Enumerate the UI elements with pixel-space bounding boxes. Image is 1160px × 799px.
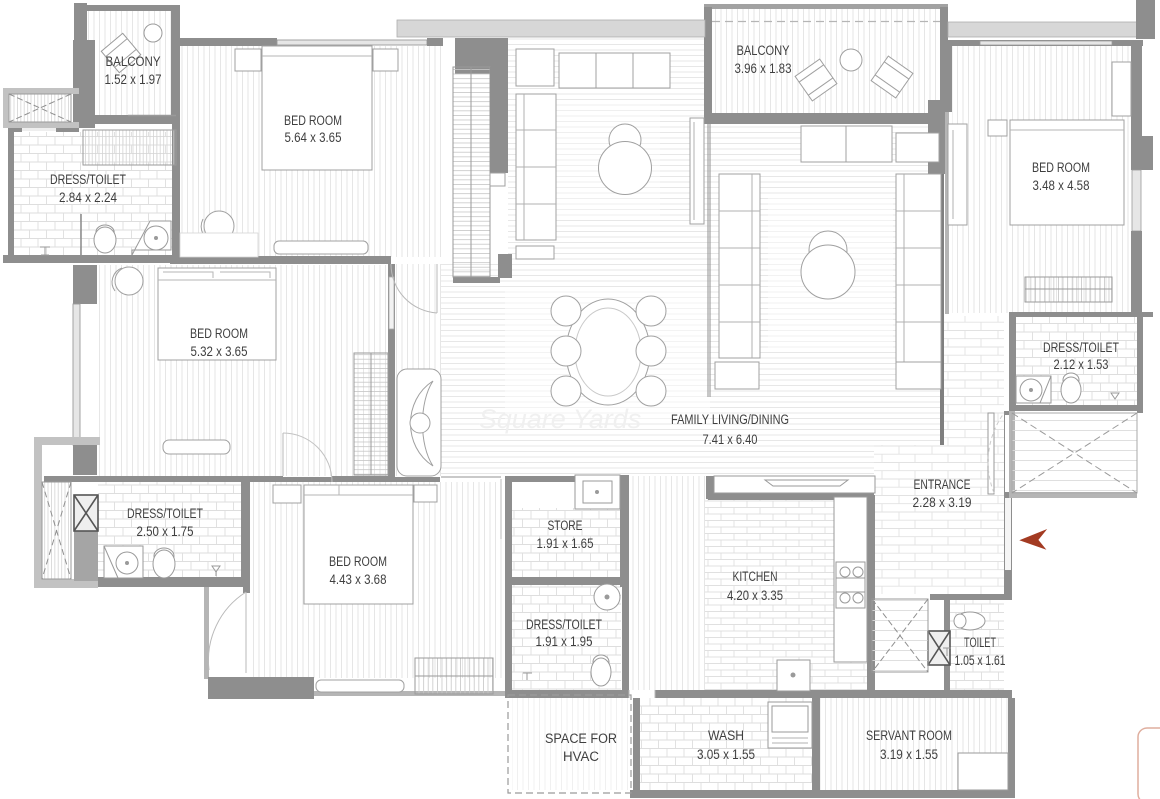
svg-text:BALCONY: BALCONY xyxy=(106,54,161,69)
svg-text:3.05 x 1.55: 3.05 x 1.55 xyxy=(697,747,755,762)
svg-text:HVAC: HVAC xyxy=(563,749,599,764)
svg-text:5.64 x 3.65: 5.64 x 3.65 xyxy=(285,130,342,145)
svg-text:BED ROOM: BED ROOM xyxy=(190,326,248,341)
svg-text:SPACE FOR: SPACE FOR xyxy=(545,731,617,746)
svg-text:1.05 x 1.61: 1.05 x 1.61 xyxy=(955,653,1006,668)
svg-text:DRESS/TOILET: DRESS/TOILET xyxy=(1043,340,1119,355)
svg-text:BALCONY: BALCONY xyxy=(737,43,790,58)
svg-text:1.91 x 1.65: 1.91 x 1.65 xyxy=(537,536,594,551)
svg-text:STORE: STORE xyxy=(548,518,583,533)
svg-text:3.96 x 1.83: 3.96 x 1.83 xyxy=(735,61,792,76)
svg-text:3.48 x 4.58: 3.48 x 4.58 xyxy=(1033,178,1090,193)
svg-text:1.91 x 1.95: 1.91 x 1.95 xyxy=(536,634,593,649)
svg-text:1.52 x 1.97: 1.52 x 1.97 xyxy=(105,72,162,87)
svg-text:2.84 x 2.24: 2.84 x 2.24 xyxy=(59,190,117,205)
svg-text:4.20 x 3.35: 4.20 x 3.35 xyxy=(727,588,783,603)
svg-text:BED ROOM: BED ROOM xyxy=(284,113,342,128)
svg-text:TOILET: TOILET xyxy=(964,635,996,650)
svg-text:7.41 x 6.40: 7.41 x 6.40 xyxy=(703,432,758,447)
svg-text:DRESS/TOILET: DRESS/TOILET xyxy=(526,617,602,632)
svg-text:WASH: WASH xyxy=(708,728,744,743)
svg-text:Square Yards: Square Yards xyxy=(479,404,642,434)
svg-text:FAMILY LIVING/DINING: FAMILY LIVING/DINING xyxy=(671,412,789,427)
svg-text:SERVANT ROOM: SERVANT ROOM xyxy=(866,728,952,743)
svg-text:2.50 x 1.75: 2.50 x 1.75 xyxy=(137,524,194,539)
svg-text:ENTRANCE: ENTRANCE xyxy=(914,477,971,492)
svg-text:2.12 x 1.53: 2.12 x 1.53 xyxy=(1054,357,1109,372)
svg-text:4.43 x 3.68: 4.43 x 3.68 xyxy=(330,572,387,587)
svg-text:2.28 x 3.19: 2.28 x 3.19 xyxy=(913,495,972,510)
svg-text:BED ROOM: BED ROOM xyxy=(329,554,387,569)
svg-text:DRESS/TOILET: DRESS/TOILET xyxy=(127,506,203,521)
svg-text:3.19 x 1.55: 3.19 x 1.55 xyxy=(880,747,938,762)
svg-text:KITCHEN: KITCHEN xyxy=(733,569,778,584)
svg-text:DRESS/TOILET: DRESS/TOILET xyxy=(50,172,126,187)
svg-text:5.32 x 3.65: 5.32 x 3.65 xyxy=(191,344,248,359)
svg-text:BED ROOM: BED ROOM xyxy=(1032,160,1090,175)
